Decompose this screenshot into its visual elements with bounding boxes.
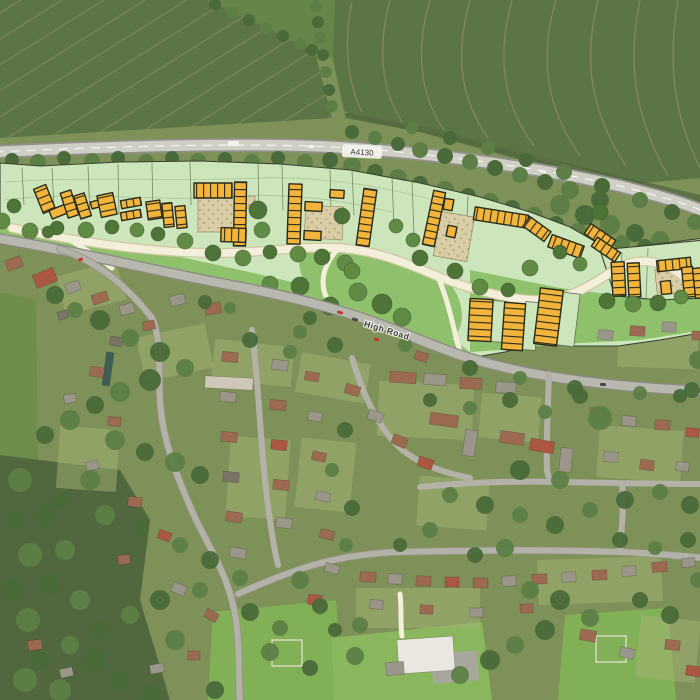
tree — [476, 496, 494, 514]
belt-tree — [462, 154, 478, 170]
house — [598, 329, 614, 341]
tree — [339, 538, 353, 552]
tree — [567, 380, 583, 396]
belt-tree — [320, 66, 332, 78]
tree — [327, 337, 343, 353]
house — [271, 439, 288, 451]
belt-tree — [226, 6, 238, 18]
plan-tree — [349, 283, 367, 301]
belt-tree — [345, 125, 359, 139]
tree — [652, 484, 668, 500]
tree — [224, 302, 236, 314]
house — [222, 351, 239, 363]
house — [622, 566, 637, 577]
tree — [422, 522, 438, 538]
house — [473, 578, 488, 588]
tree — [588, 406, 612, 430]
plan-tree — [553, 245, 567, 259]
belt-tree — [326, 100, 338, 112]
plan-tree — [372, 294, 392, 314]
house — [685, 665, 700, 677]
tree — [13, 668, 37, 692]
tree — [521, 581, 539, 599]
main-road-label-text: A4130 — [350, 147, 374, 157]
plan-tree — [334, 208, 350, 224]
house — [108, 417, 122, 427]
tree — [121, 606, 139, 624]
tree — [39, 574, 61, 596]
plan-tree — [406, 233, 420, 247]
tree — [8, 468, 32, 492]
tree — [172, 537, 188, 553]
belt-tree — [57, 151, 71, 165]
garden-patch — [377, 381, 475, 441]
tree — [616, 491, 634, 509]
house — [63, 393, 76, 404]
house — [562, 572, 576, 582]
tree — [95, 505, 115, 525]
belt-tree — [437, 148, 453, 164]
plan-tree — [625, 296, 641, 312]
house — [272, 359, 289, 371]
tree — [201, 551, 219, 569]
tree — [136, 443, 154, 461]
belt-tree — [632, 192, 648, 208]
plan-tree — [42, 226, 54, 238]
house — [502, 576, 516, 586]
tree — [16, 608, 40, 632]
tree — [538, 405, 552, 419]
tree — [502, 392, 518, 408]
belt-tree — [481, 141, 495, 155]
plan-tree — [650, 295, 666, 311]
house — [220, 391, 237, 403]
plan-tree — [389, 219, 403, 233]
plan-tree — [501, 283, 515, 297]
plan-courtyard — [198, 198, 234, 232]
tree — [139, 369, 161, 391]
tree — [110, 382, 130, 402]
belt-tree — [294, 38, 306, 50]
tree — [684, 382, 700, 398]
plan-tree — [447, 263, 463, 279]
belt-tree — [487, 160, 503, 176]
tree — [86, 396, 104, 414]
house — [275, 517, 292, 529]
plan-tree — [290, 246, 306, 262]
house — [270, 399, 287, 411]
tree — [496, 539, 514, 557]
plan-building — [468, 298, 493, 341]
house — [388, 574, 402, 584]
house — [445, 577, 459, 587]
tree — [581, 609, 599, 627]
house — [370, 600, 384, 610]
house — [496, 382, 516, 394]
tree — [90, 310, 110, 330]
tree — [176, 359, 194, 377]
belt-tree — [594, 178, 610, 194]
tree — [80, 470, 100, 490]
tree — [165, 452, 185, 472]
belt-tree — [317, 49, 329, 61]
tree — [83, 648, 107, 672]
tree — [70, 590, 90, 610]
house — [223, 471, 240, 483]
house — [225, 511, 242, 523]
tree — [661, 606, 679, 624]
tree — [61, 636, 79, 654]
tree — [283, 345, 297, 359]
plan-building — [446, 225, 457, 238]
house — [205, 376, 254, 390]
house — [630, 325, 646, 336]
tree — [4, 509, 26, 531]
plan-tree — [472, 279, 488, 295]
house — [662, 322, 676, 332]
house — [273, 479, 290, 491]
tree — [513, 371, 527, 385]
plan-tree — [344, 263, 360, 279]
belt-tree — [556, 164, 572, 180]
house — [604, 452, 619, 463]
house — [416, 576, 431, 587]
tree — [191, 466, 209, 484]
tree — [206, 681, 224, 699]
tree — [1, 579, 23, 601]
tree — [312, 598, 328, 614]
plan-tree — [674, 290, 688, 304]
belt-tree — [306, 44, 318, 56]
tree — [241, 603, 259, 621]
belt-tree — [312, 16, 324, 28]
tree — [55, 540, 75, 560]
tree — [337, 422, 353, 438]
tree — [49, 679, 71, 700]
tree — [612, 532, 628, 548]
tree — [344, 500, 360, 516]
tree — [105, 430, 125, 450]
plan-building — [287, 184, 302, 244]
belt-tree — [310, 0, 322, 12]
house — [520, 604, 533, 613]
belt-tree — [626, 224, 644, 242]
plan-tree — [573, 257, 587, 271]
belt-tree — [575, 205, 595, 225]
tree — [198, 295, 212, 309]
house — [390, 371, 417, 384]
vehicle — [228, 141, 239, 146]
plan-building — [162, 203, 174, 228]
tree — [480, 650, 500, 670]
tree — [303, 311, 317, 325]
house — [109, 336, 122, 347]
house — [386, 661, 405, 675]
plan-building — [501, 302, 525, 350]
tree — [451, 666, 469, 684]
tree — [46, 286, 64, 304]
aerial-masterplan-map: A4130 High Road — [0, 0, 700, 700]
vehicle — [308, 145, 314, 148]
plan-tree — [522, 260, 538, 276]
plan-tree — [78, 222, 94, 238]
belt-tree — [391, 137, 405, 151]
tree — [442, 487, 458, 503]
tree — [67, 302, 83, 318]
tree — [302, 660, 318, 676]
tree — [551, 471, 569, 489]
tree — [150, 342, 170, 362]
tree — [462, 360, 478, 376]
plan-building — [443, 198, 454, 210]
house — [682, 558, 696, 568]
belt-tree — [314, 32, 326, 44]
plan-tree — [599, 293, 615, 309]
house — [188, 651, 200, 660]
plan-building — [194, 183, 232, 198]
school-drive — [400, 594, 402, 636]
plan-tree — [205, 245, 221, 261]
house — [655, 419, 671, 430]
plan-tree — [105, 220, 119, 234]
house — [622, 415, 637, 426]
tree — [261, 643, 279, 661]
tree — [293, 325, 307, 339]
plan-tree — [592, 204, 608, 220]
belt-tree — [537, 174, 553, 190]
plan-tree — [130, 223, 144, 237]
map-canvas: A4130 High Road — [0, 0, 700, 700]
plan-tree — [235, 250, 251, 266]
house — [360, 572, 376, 583]
plan-tree — [177, 233, 193, 249]
belt-tree — [271, 151, 285, 165]
tree — [165, 630, 185, 650]
tree — [51, 491, 69, 509]
house — [559, 447, 573, 472]
house — [592, 570, 607, 581]
plan-tree — [393, 308, 411, 326]
tree — [328, 623, 342, 637]
belt-tree — [512, 167, 528, 183]
plan-building — [304, 231, 321, 241]
belt-tree — [664, 204, 680, 220]
tree — [325, 463, 339, 477]
plan-tree — [263, 245, 277, 259]
field-left-strip — [0, 292, 38, 462]
tree — [291, 571, 309, 589]
tree — [242, 332, 258, 348]
house — [424, 373, 447, 386]
tree — [110, 670, 130, 690]
tree — [272, 620, 288, 636]
house — [460, 378, 482, 390]
belt-tree — [519, 153, 533, 167]
tree — [131, 519, 149, 537]
belt-tree — [368, 131, 382, 145]
plan-building — [330, 190, 345, 199]
plan-building — [660, 281, 671, 295]
tree — [36, 426, 54, 444]
tree — [393, 538, 407, 552]
tree — [121, 329, 139, 347]
tree — [632, 592, 648, 608]
house — [675, 461, 689, 472]
belt-tree — [260, 22, 272, 34]
house — [639, 459, 654, 471]
tree — [535, 620, 555, 640]
vehicle — [600, 383, 606, 386]
tree — [467, 547, 483, 563]
house — [397, 636, 455, 674]
tree — [550, 590, 570, 610]
house — [27, 639, 42, 651]
main-road-label: A4130 — [342, 144, 383, 159]
belt-tree — [443, 131, 457, 145]
plan-tree — [22, 223, 38, 239]
house — [127, 496, 142, 508]
tree — [506, 636, 524, 654]
belt-tree — [323, 84, 335, 96]
tree — [423, 393, 437, 407]
tree — [582, 502, 598, 518]
belt-tree — [412, 142, 428, 158]
belt-tree — [406, 122, 418, 134]
tree — [18, 543, 42, 567]
tree — [680, 532, 696, 548]
tree — [681, 496, 699, 514]
belt-tree — [561, 181, 579, 199]
tree — [60, 410, 80, 430]
house — [665, 639, 681, 651]
belt-tree — [243, 14, 255, 26]
plan-building — [611, 262, 626, 297]
belt-tree — [277, 30, 289, 42]
plan-tree — [412, 250, 428, 266]
house — [686, 427, 700, 437]
house — [221, 431, 238, 443]
plan-building — [627, 263, 641, 298]
house — [420, 605, 433, 614]
plan-building — [305, 202, 322, 212]
plan-building — [175, 206, 187, 229]
tree — [546, 516, 564, 534]
plan-building — [146, 200, 162, 220]
tree — [346, 647, 364, 665]
house — [470, 608, 483, 617]
tree — [34, 504, 56, 526]
plan-tree — [254, 222, 270, 238]
plan-building — [221, 228, 246, 243]
tree — [648, 541, 662, 555]
tree — [192, 582, 208, 598]
plan-tree — [249, 201, 267, 219]
plan-tree — [7, 199, 21, 213]
plan-tree — [291, 277, 309, 295]
tree — [512, 507, 528, 523]
tree — [30, 650, 50, 670]
tree — [510, 460, 530, 480]
house — [89, 366, 105, 378]
tree — [232, 570, 248, 586]
house — [118, 554, 131, 564]
plan-tree — [314, 249, 330, 265]
tree — [633, 386, 647, 400]
tree — [90, 620, 110, 640]
tree — [463, 401, 477, 415]
plan-tree — [151, 227, 165, 241]
tree — [352, 617, 368, 633]
tree — [150, 590, 170, 610]
house — [652, 561, 668, 572]
belt-tree — [322, 152, 338, 168]
house — [692, 331, 700, 340]
